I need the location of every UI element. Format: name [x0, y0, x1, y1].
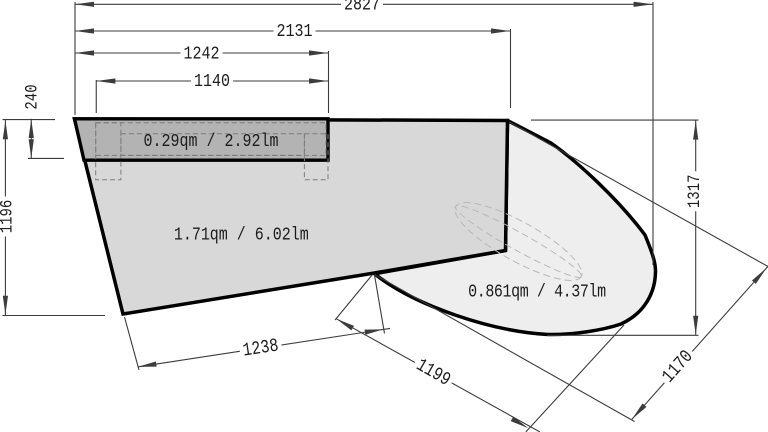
svg-text:0.29qm / 2.92lm: 0.29qm / 2.92lm: [144, 132, 279, 153]
svg-text:1.71qm / 6.02lm: 1.71qm / 6.02lm: [174, 225, 309, 246]
svg-text:2827: 2827: [344, 0, 380, 16]
svg-text:240: 240: [22, 84, 42, 109]
svg-text:1317: 1317: [685, 175, 705, 209]
svg-text:2131: 2131: [277, 22, 313, 43]
svg-text:0.861qm / 4.37lm: 0.861qm / 4.37lm: [468, 282, 606, 303]
svg-text:1140: 1140: [194, 72, 230, 93]
svg-text:1196: 1196: [0, 200, 17, 234]
svg-text:1242: 1242: [184, 44, 220, 65]
